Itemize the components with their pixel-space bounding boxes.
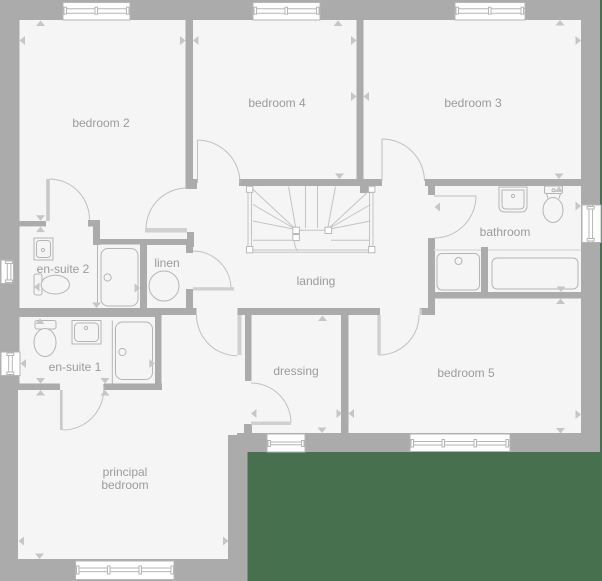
svg-text:bedroom 4: bedroom 4 bbox=[248, 96, 306, 110]
svg-text:bedroom 5: bedroom 5 bbox=[437, 366, 495, 380]
svg-text:bedroom 3: bedroom 3 bbox=[444, 96, 502, 110]
svg-text:linen: linen bbox=[154, 256, 179, 270]
svg-text:dressing: dressing bbox=[273, 364, 318, 378]
svg-text:en-suite 2: en-suite 2 bbox=[37, 262, 90, 276]
svg-text:landing: landing bbox=[297, 274, 336, 288]
svg-text:bedroom: bedroom bbox=[101, 478, 148, 492]
svg-text:principal: principal bbox=[103, 465, 148, 479]
svg-text:en-suite 1: en-suite 1 bbox=[49, 360, 102, 374]
svg-text:bathroom: bathroom bbox=[480, 225, 531, 239]
svg-text:bedroom 2: bedroom 2 bbox=[72, 116, 130, 130]
